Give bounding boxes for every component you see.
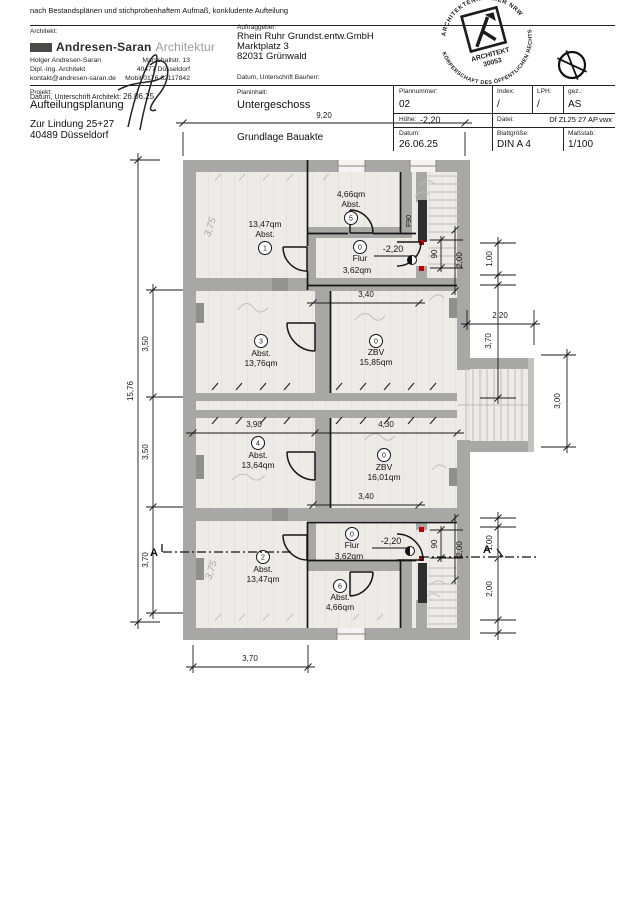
- svg-text:4: 4: [256, 441, 260, 448]
- table-line: [563, 127, 564, 151]
- level-top: -2,20: [383, 244, 404, 254]
- projekt-label: Projekt:: [30, 89, 52, 96]
- firm-logo-icon: [30, 43, 52, 52]
- svg-text:Abst.: Abst.: [341, 199, 360, 209]
- planinhalt-value: Untergeschoss: [237, 99, 310, 111]
- svg-text:3,62qm: 3,62qm: [343, 265, 371, 275]
- dim-flur-bottom: 3,40: [358, 492, 374, 501]
- svg-text:16,01qm: 16,01qm: [367, 472, 400, 482]
- auftraggeber-label: Auftraggeber:: [237, 24, 276, 31]
- svg-text:Abst.: Abst.: [255, 229, 274, 239]
- plan-note: nach Bestandsplänen und stichprobenhafte…: [30, 6, 288, 15]
- sig-bauherr-label: Datum, Unterschrift Bauherr:: [237, 74, 320, 81]
- dim-right-d: 3,00: [553, 393, 562, 409]
- section-marker-right: A: [483, 544, 491, 556]
- f90-label: F90: [406, 215, 413, 227]
- datei-value: Df ZL25 27 AP.vwx: [497, 115, 612, 124]
- plannummer-value: 02: [399, 99, 410, 110]
- svg-text:5: 5: [349, 216, 353, 223]
- svg-text:15,85qm: 15,85qm: [359, 357, 392, 367]
- dim-right-a: 1,00: [485, 251, 494, 267]
- chamber-stamp: ARCHITEKTENKAMMER NRW KÖRPERSCHAFT DES Ö…: [420, 0, 560, 105]
- dim-right-c: 3,70: [484, 333, 493, 349]
- svg-text:2: 2: [261, 555, 265, 562]
- dim-left-c: 3,70: [141, 552, 150, 568]
- table-line: [393, 85, 394, 151]
- dim-height-total: 15,76: [126, 380, 135, 401]
- dim-door-h-bot: 2,00: [455, 541, 464, 557]
- table-line: [393, 113, 615, 114]
- datum-value: 26.06.25: [399, 139, 438, 150]
- f90-wall-top: [418, 200, 427, 242]
- blatt-label: Blattgröße:: [497, 130, 529, 137]
- svg-text:4,66qm: 4,66qm: [326, 602, 354, 612]
- north-symbol: [550, 45, 596, 87]
- hoehe-label: Höhe:: [399, 116, 416, 123]
- dim-right-b: 2,20: [492, 311, 508, 320]
- dim-rooms-left: 3,90: [246, 420, 262, 429]
- dim-flur-top: 3,40: [358, 290, 374, 299]
- dim-rooms-right: 4,30: [378, 420, 394, 429]
- svg-text:ZBV: ZBV: [368, 347, 385, 357]
- svg-text:Flur: Flur: [353, 253, 368, 263]
- projekt-value: Aufteilungsplanung: [30, 99, 124, 111]
- table-line: [563, 85, 564, 113]
- dim-left-a: 3,50: [141, 336, 150, 352]
- svg-text:13,76qm: 13,76qm: [244, 358, 277, 368]
- svg-text:3,62qm: 3,62qm: [335, 551, 363, 561]
- dim-door-w-top: 90: [430, 249, 439, 258]
- gez-label: gez.:: [568, 88, 582, 95]
- level-bottom: -2,20: [381, 536, 402, 546]
- svg-text:13,64qm: 13,64qm: [241, 460, 274, 470]
- scanned-plan-underlay: 3,75 3,75: [183, 160, 534, 640]
- svg-text:0: 0: [350, 532, 354, 539]
- architekt-label: Architekt:: [30, 28, 57, 35]
- svg-text:ZBV: ZBV: [376, 462, 393, 472]
- f90-wall-bottom: [418, 563, 427, 603]
- svg-text:0: 0: [374, 339, 378, 346]
- section-marker-left: A: [150, 547, 158, 559]
- svg-text:Abst.: Abst.: [330, 592, 349, 602]
- svg-text:Abst.: Abst.: [248, 450, 267, 460]
- svg-text:6: 6: [338, 584, 342, 591]
- drawing-sheet: 3,75 3,75 F90: [0, 0, 635, 900]
- client-block: Rhein Ruhr Grundst.entw.GmbH Marktplatz …: [237, 32, 374, 61]
- massstab-label: Maßstab:: [568, 130, 595, 137]
- svg-text:13,47qm: 13,47qm: [246, 574, 279, 584]
- dim-right-f: 2,00: [485, 581, 494, 597]
- svg-text:13,47qm: 13,47qm: [248, 219, 281, 229]
- grundlage-value: Grundlage Bauakte: [237, 132, 323, 143]
- datum-label: Datum:: [399, 130, 420, 137]
- svg-text:1: 1: [263, 246, 267, 253]
- blatt-value: DIN A 4: [497, 139, 531, 150]
- dim-left-b: 3,50: [141, 444, 150, 460]
- title-block: nach Bestandsplänen und stichprobenhafte…: [0, 0, 635, 180]
- dim-door-h-top: 2,00: [455, 252, 464, 268]
- svg-text:4,66qm: 4,66qm: [337, 189, 365, 199]
- svg-text:3: 3: [259, 339, 263, 346]
- stamp-logo-glyph: [470, 16, 496, 46]
- hoehe-value: -2,20: [420, 115, 441, 125]
- gez-value: AS: [568, 99, 581, 110]
- massstab-value: 1/100: [568, 139, 593, 150]
- svg-text:0: 0: [358, 245, 362, 252]
- svg-text:Flur: Flur: [345, 540, 360, 550]
- projekt-city: 40489 Düsseldorf: [30, 130, 108, 141]
- svg-text:Abst.: Abst.: [251, 348, 270, 358]
- dim-door-w-bot: 90: [430, 539, 439, 548]
- stamp-arc-top: ARCHITEKTENKAMMER NRW: [434, 0, 524, 38]
- planinhalt-label: Planinhalt:: [237, 89, 267, 96]
- dim-bottom: 3,70: [242, 654, 258, 663]
- table-line: [393, 127, 615, 128]
- projekt-street: Zur Lindung 25+27: [30, 119, 114, 130]
- svg-text:Abst.: Abst.: [253, 564, 272, 574]
- svg-text:ARCHITEKTENKAMMER NRW: ARCHITEKTENKAMMER NRW: [434, 0, 524, 38]
- client-city: 82031 Grünwald: [237, 52, 374, 62]
- svg-text:0: 0: [382, 453, 386, 460]
